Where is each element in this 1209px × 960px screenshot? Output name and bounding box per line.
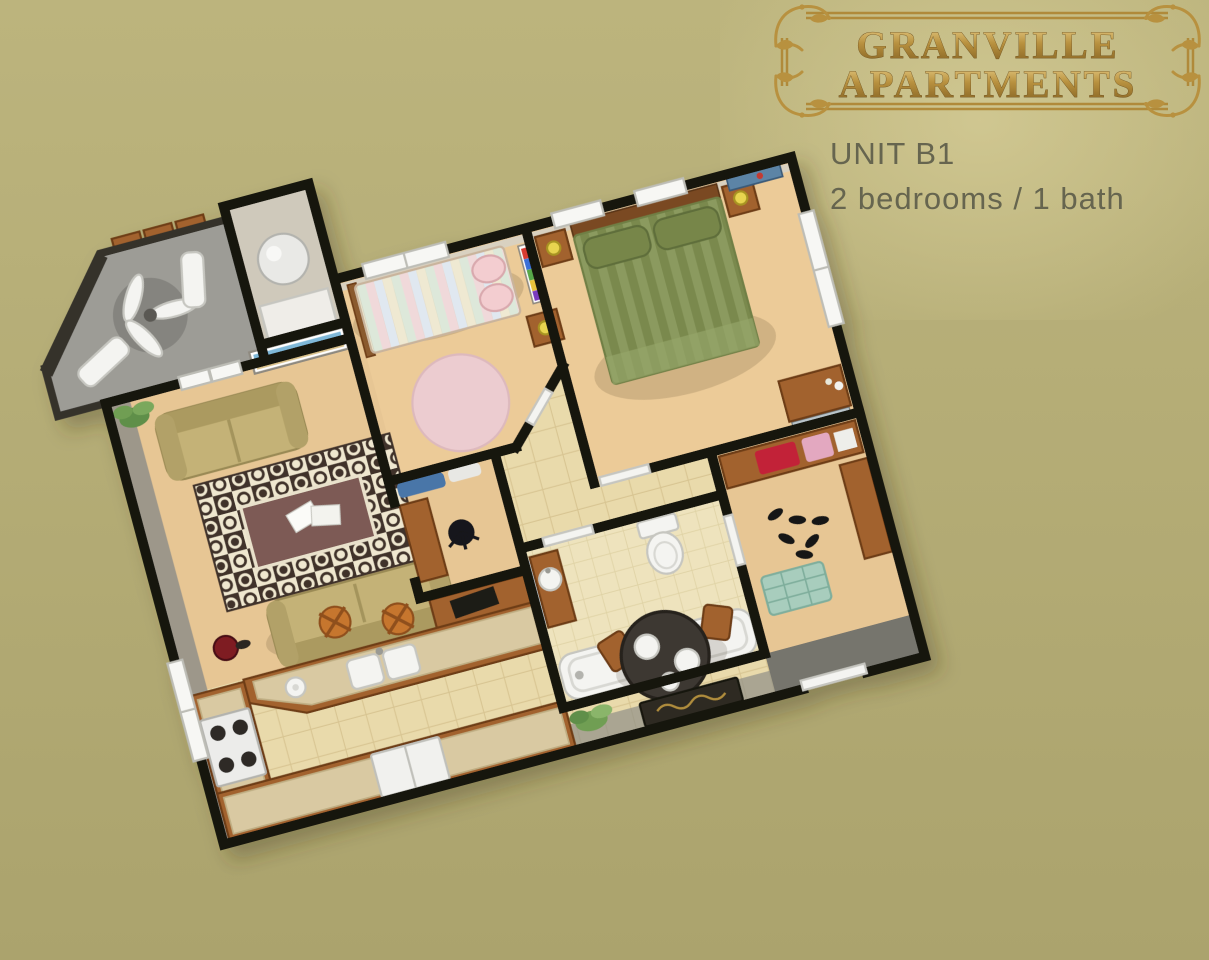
nightstand-lamp xyxy=(535,229,573,267)
floor-plan-sheet: GRANVILLE APARTMENTS UNIT B1 2 bedrooms … xyxy=(0,0,1209,960)
unit-label: UNIT B1 xyxy=(830,136,955,171)
brand-title-line1: GRANVILLE xyxy=(856,24,1119,67)
magazine xyxy=(311,505,341,526)
lounge-chair xyxy=(181,252,206,308)
brand-title-line2: APARTMENTS xyxy=(839,63,1138,106)
specs-label: 2 bedrooms / 1 bath xyxy=(830,181,1125,216)
